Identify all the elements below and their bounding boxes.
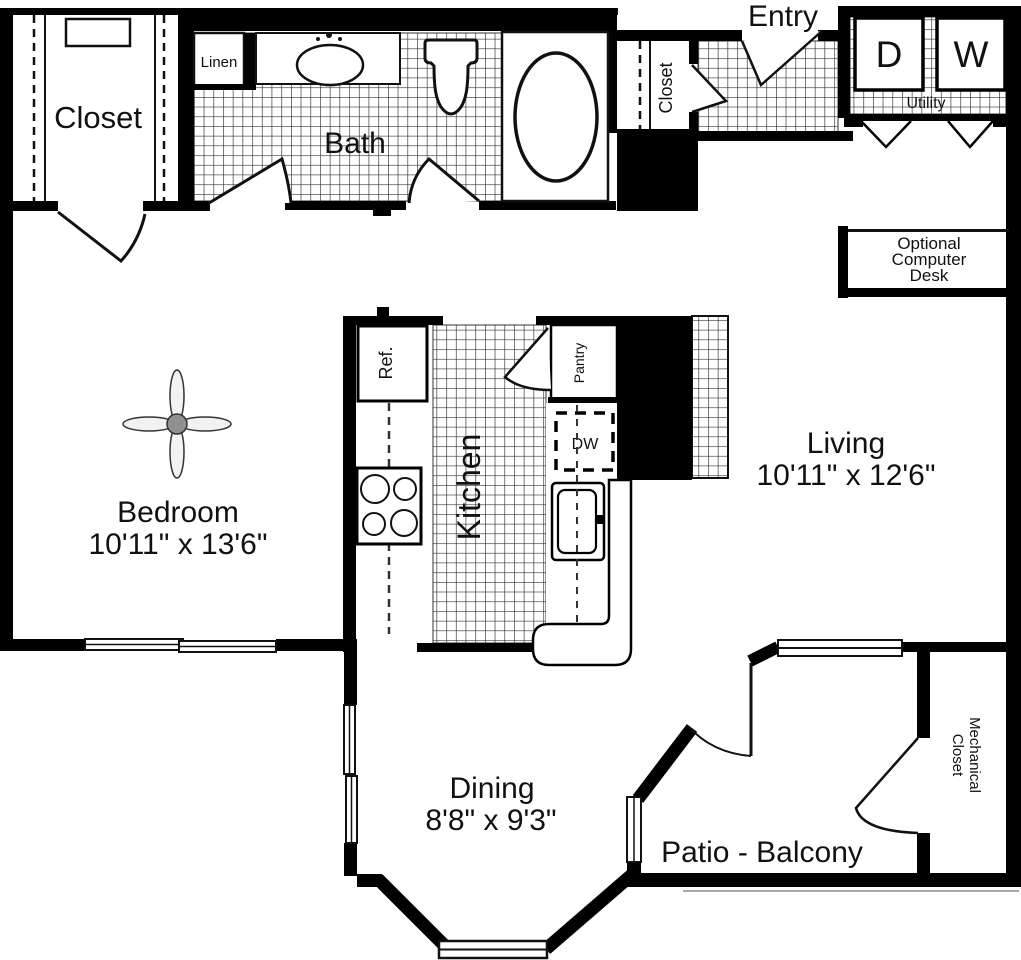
svg-text:8'8" x 9'3": 8'8" x 9'3" [425, 804, 556, 837]
svg-text:Closet: Closet [656, 62, 676, 113]
svg-text:Ref.: Ref. [376, 346, 396, 379]
svg-text:DW: DW [572, 436, 600, 453]
svg-text:Entry: Entry [748, 0, 818, 33]
svg-text:Utility: Utility [906, 95, 945, 112]
svg-text:Living: Living [807, 427, 885, 460]
svg-text:10'11" x 13'6": 10'11" x 13'6" [89, 528, 268, 561]
svg-text:D: D [876, 34, 903, 75]
svg-text:Closet: Closet [54, 100, 142, 135]
svg-text:Kitchen: Kitchen [451, 434, 487, 541]
svg-text:Patio - Balcony: Patio - Balcony [661, 836, 863, 869]
svg-text:Desk: Desk [910, 266, 949, 285]
svg-text:Bath: Bath [324, 127, 386, 160]
svg-text:Mechanical: Mechanical [966, 717, 983, 793]
svg-text:W: W [954, 34, 989, 75]
svg-text:Dining: Dining [449, 772, 534, 805]
svg-text:Closet: Closet [949, 734, 966, 777]
svg-text:Pantry: Pantry [571, 343, 587, 383]
svg-text:Bedroom: Bedroom [117, 496, 239, 529]
svg-text:10'11" x 12'6": 10'11" x 12'6" [757, 459, 936, 492]
svg-text:Linen: Linen [201, 54, 238, 71]
